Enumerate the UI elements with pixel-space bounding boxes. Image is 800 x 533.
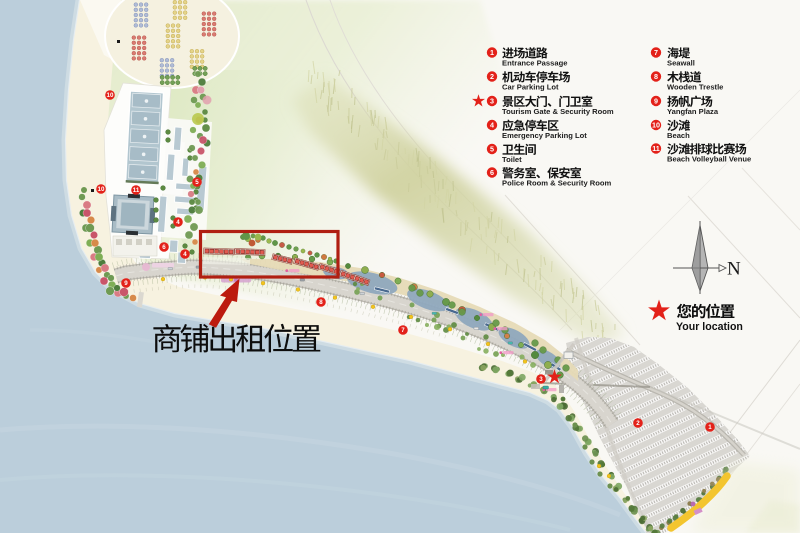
svg-text:1: 1	[708, 424, 712, 431]
svg-text:N: N	[727, 259, 741, 280]
svg-text:Seawall: Seawall	[667, 59, 695, 68]
svg-text:Tourism Gate & Security Room: Tourism Gate & Security Room	[502, 107, 614, 116]
svg-text:Beach: Beach	[667, 131, 690, 140]
svg-text:Emergency Parking Lot: Emergency Parking Lot	[502, 131, 587, 140]
svg-text:3: 3	[490, 97, 494, 106]
svg-text:3: 3	[539, 376, 543, 383]
svg-text:10: 10	[107, 92, 114, 99]
svg-text:7: 7	[654, 48, 658, 57]
svg-text:11: 11	[133, 187, 140, 194]
svg-text:Wooden Trestle: Wooden Trestle	[667, 83, 723, 92]
svg-text:6: 6	[162, 244, 166, 251]
svg-text:1: 1	[490, 48, 494, 57]
svg-text:4: 4	[176, 219, 180, 226]
svg-text:5: 5	[490, 145, 494, 154]
svg-text:4: 4	[490, 121, 494, 130]
svg-text:4: 4	[183, 251, 187, 258]
svg-text:10: 10	[652, 121, 660, 130]
svg-text:Beach Volleyball Venue: Beach Volleyball Venue	[667, 155, 751, 164]
svg-text:6: 6	[490, 168, 494, 177]
svg-text:8: 8	[319, 299, 323, 306]
svg-text:11: 11	[652, 144, 660, 153]
svg-text:9: 9	[654, 97, 658, 106]
svg-text:7: 7	[401, 327, 405, 334]
svg-text:2: 2	[636, 420, 640, 427]
svg-text:9: 9	[124, 280, 128, 287]
svg-text:Your location: Your location	[676, 321, 743, 333]
svg-text:10: 10	[98, 186, 105, 193]
svg-text:8: 8	[654, 72, 658, 81]
svg-text:Entrance Passage: Entrance Passage	[502, 59, 567, 68]
svg-text:Car Parking Lot: Car Parking Lot	[502, 83, 559, 92]
svg-text:Yangfan Plaza: Yangfan Plaza	[667, 107, 719, 116]
svg-text:Toilet: Toilet	[502, 155, 522, 164]
svg-text:Police Room & Security Room: Police Room & Security Room	[502, 179, 612, 188]
svg-text:2: 2	[490, 72, 494, 81]
svg-text:5: 5	[195, 179, 199, 186]
